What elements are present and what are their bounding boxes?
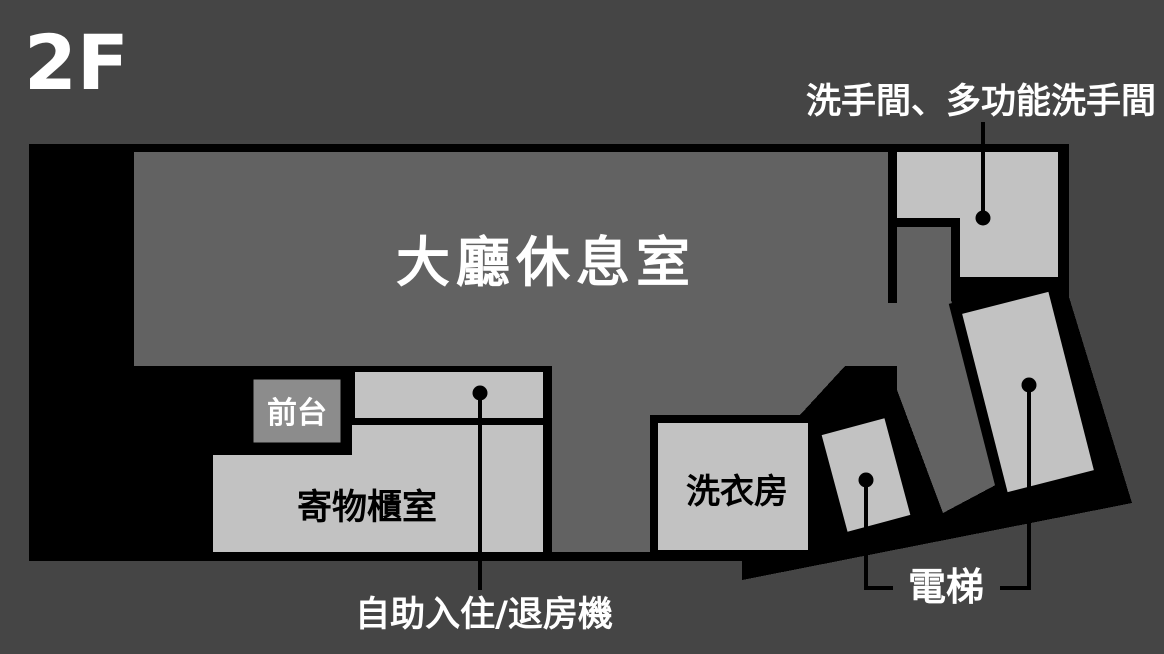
elevator-right-callout-dot — [1022, 378, 1037, 393]
checkin-kiosk-area — [355, 372, 543, 418]
kiosk-label: 自助入住/退房機 — [355, 595, 613, 635]
elevator-label: 電梯 — [908, 565, 984, 609]
front-desk-label: 前台 — [267, 396, 327, 431]
kiosk-callout-dot — [473, 386, 488, 401]
elevator-left-callout-dot — [859, 473, 874, 488]
restroom-label: 洗手間、多功能洗手間 — [806, 82, 1156, 122]
floor-plan: 2F 洗手間、多功能洗手間 大廳休息室 前台 寄物櫃室 洗衣房 自助入住/退房機… — [0, 0, 1164, 654]
laundry-label: 洗衣房 — [686, 472, 788, 512]
floor-label: 2F — [24, 18, 129, 107]
restroom-callout-dot — [976, 211, 991, 226]
lower-corridor-floor — [552, 366, 845, 415]
lobby-label: 大廳休息室 — [396, 231, 696, 294]
locker-label: 寄物櫃室 — [297, 487, 437, 528]
